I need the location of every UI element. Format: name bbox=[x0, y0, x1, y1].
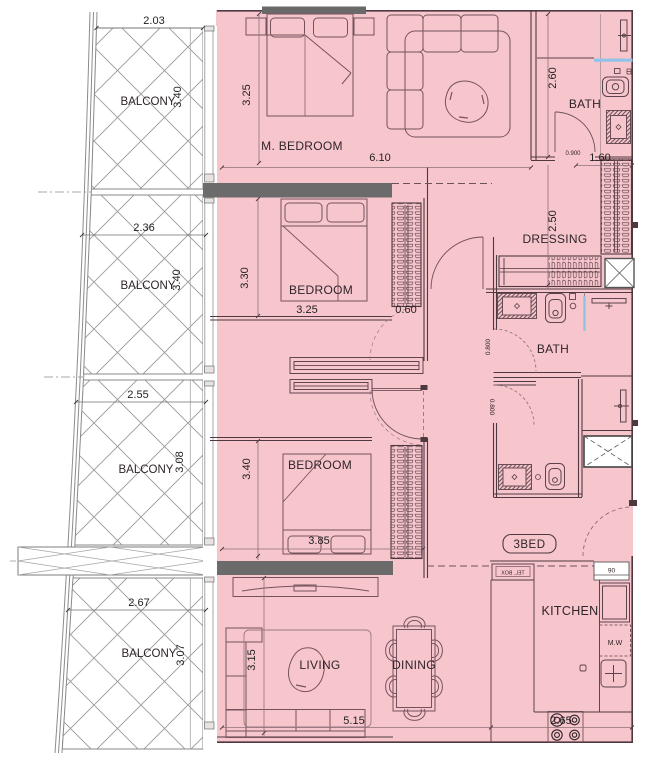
svg-text:M.W: M.W bbox=[608, 640, 623, 647]
svg-text:2.67: 2.67 bbox=[128, 597, 149, 609]
svg-text:2.60: 2.60 bbox=[547, 67, 559, 88]
svg-text:0.900: 0.900 bbox=[565, 151, 581, 157]
svg-text:BALCONY: BALCONY bbox=[122, 648, 177, 660]
svg-text:2.65: 2.65 bbox=[550, 715, 571, 727]
svg-text:DINING: DINING bbox=[392, 658, 436, 672]
svg-text:2.50: 2.50 bbox=[547, 210, 559, 231]
svg-text:M. BEDROOM: M. BEDROOM bbox=[261, 139, 343, 153]
svg-text:2.03: 2.03 bbox=[143, 15, 164, 27]
svg-text:BALCONY: BALCONY bbox=[121, 280, 176, 292]
svg-text:KITCHEN: KITCHEN bbox=[542, 604, 599, 618]
svg-text:90: 90 bbox=[608, 568, 616, 575]
svg-text:3.08: 3.08 bbox=[174, 451, 186, 472]
svg-text:6.10: 6.10 bbox=[369, 152, 390, 164]
svg-text:3.07: 3.07 bbox=[175, 644, 187, 665]
svg-text:5.15: 5.15 bbox=[343, 715, 364, 727]
svg-text:2.55: 2.55 bbox=[127, 389, 148, 401]
svg-text:DRESSING: DRESSING bbox=[522, 232, 587, 246]
svg-text:BATH: BATH bbox=[569, 97, 601, 111]
svg-text:1.60: 1.60 bbox=[589, 152, 610, 164]
svg-text:3.85: 3.85 bbox=[308, 535, 329, 547]
svg-text:3BED: 3BED bbox=[513, 539, 545, 551]
svg-text:BEDROOM: BEDROOM bbox=[288, 458, 352, 472]
svg-text:0.800: 0.800 bbox=[488, 399, 495, 416]
svg-text:3.25: 3.25 bbox=[241, 84, 253, 105]
svg-text:LIVING: LIVING bbox=[299, 658, 340, 672]
svg-text:3.25: 3.25 bbox=[296, 304, 317, 316]
svg-text:BALCONY: BALCONY bbox=[119, 464, 174, 476]
svg-text:BALCONY: BALCONY bbox=[121, 96, 176, 108]
svg-text:BATH: BATH bbox=[537, 342, 569, 356]
svg-text:3.15: 3.15 bbox=[246, 649, 258, 670]
svg-text:3.40: 3.40 bbox=[241, 458, 253, 479]
svg-text:TEL. BOX: TEL. BOX bbox=[501, 571, 525, 577]
svg-text:3.40: 3.40 bbox=[171, 269, 183, 290]
svg-text:3.40: 3.40 bbox=[172, 86, 184, 107]
svg-text:BEDROOM: BEDROOM bbox=[289, 283, 353, 297]
svg-text:0.800: 0.800 bbox=[485, 338, 492, 355]
svg-text:0.60: 0.60 bbox=[395, 304, 416, 316]
svg-text:3.30: 3.30 bbox=[239, 267, 251, 288]
svg-text:2.36: 2.36 bbox=[133, 222, 154, 234]
